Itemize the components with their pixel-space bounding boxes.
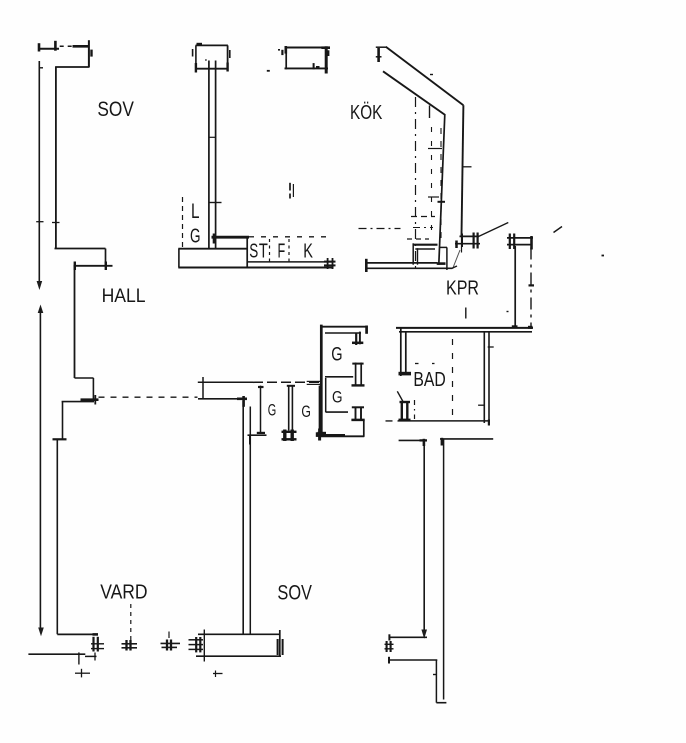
svg-text:G: G: [331, 345, 342, 366]
svg-text:HALL: HALL: [102, 286, 146, 307]
svg-text:SOV: SOV: [97, 98, 133, 121]
svg-text:KÖK: KÖK: [350, 102, 383, 124]
svg-text:L: L: [191, 200, 200, 223]
svg-text:KPR: KPR: [446, 278, 479, 300]
svg-text:BAD: BAD: [413, 368, 445, 391]
svg-text:S: S: [249, 240, 258, 262]
svg-text:G: G: [332, 388, 343, 407]
svg-text:K: K: [303, 240, 313, 262]
svg-text:G: G: [268, 402, 277, 420]
svg-text:F: F: [278, 240, 286, 262]
svg-text:G: G: [190, 226, 201, 248]
svg-text:G: G: [301, 403, 311, 421]
svg-text:T: T: [259, 240, 268, 262]
svg-text:VARD: VARD: [100, 582, 147, 604]
svg-text:SOV: SOV: [277, 582, 312, 605]
